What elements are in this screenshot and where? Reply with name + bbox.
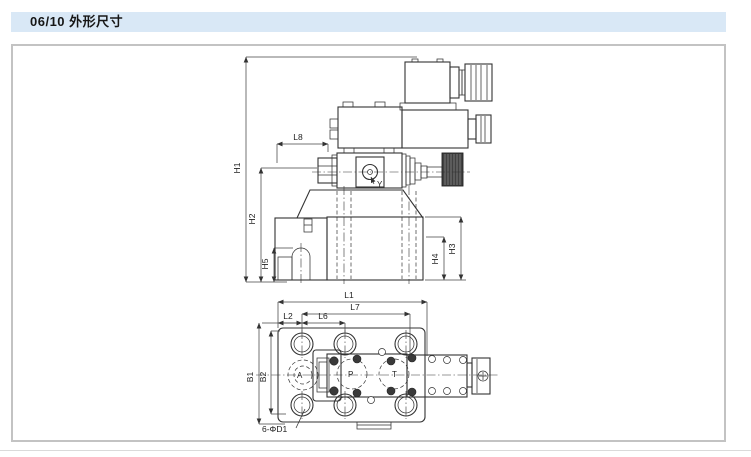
pilot-valve-body: [337, 153, 402, 188]
plate-screws: [368, 349, 467, 404]
cable-gland-lower: [468, 115, 491, 143]
dimension-drawing: Y: [0, 0, 751, 457]
dim-label-l2: L2: [283, 311, 293, 321]
cable-gland-upper: [450, 64, 492, 101]
dim-label-l7: L7: [350, 302, 360, 312]
dim-label-hole-diameter: 6-ΦD1: [262, 424, 287, 434]
dim-label-h4: H4: [430, 253, 440, 264]
mounting-holes: [291, 330, 417, 419]
port-label-t: T: [392, 370, 397, 379]
directional-valve-body: [338, 107, 402, 148]
socket-bolts: [330, 354, 416, 397]
dim-label-h5: H5: [260, 258, 270, 269]
dim-label-h1: H1: [232, 162, 242, 173]
dim-label-h3: H3: [447, 243, 457, 254]
adjustment-knob: [442, 153, 463, 186]
solenoid-coil: [405, 62, 450, 103]
dim-label-h2: H2: [247, 213, 257, 224]
hex-plug: [318, 158, 337, 183]
port-label-y: Y: [377, 180, 383, 189]
dim-label-b2: B2: [258, 372, 268, 383]
dim-label-l8: L8: [293, 132, 303, 142]
valve-main-body: [327, 217, 423, 280]
body-neck: [297, 190, 423, 218]
top-view: A P T L1 L7 L6 L2 B1: [245, 290, 500, 434]
solenoid-tube: [402, 110, 468, 148]
port-label-p: P: [348, 370, 353, 379]
port-label-a: A: [297, 371, 303, 380]
name-tab: [357, 422, 391, 429]
side-view: Y: [232, 57, 492, 284]
dim-label-l1: L1: [344, 290, 354, 300]
dim-label-b1: B1: [245, 372, 255, 383]
dim-label-l6: L6: [318, 311, 328, 321]
